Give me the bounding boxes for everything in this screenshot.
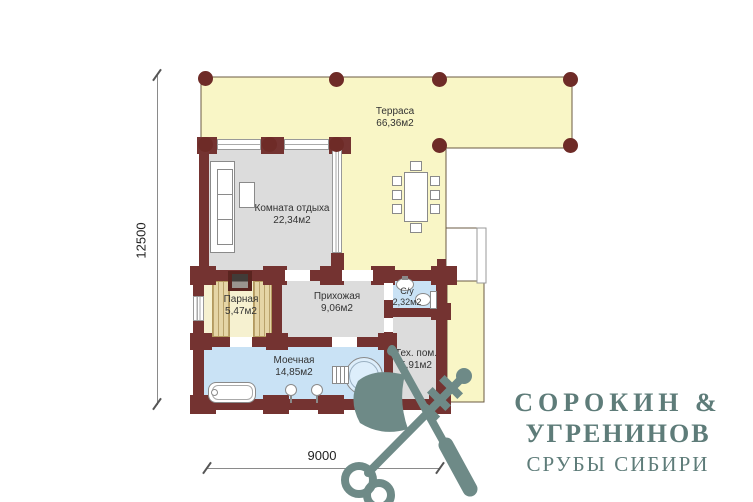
log-column <box>329 72 344 87</box>
chair <box>392 176 402 186</box>
chair <box>410 161 422 171</box>
shower-stand-pole <box>290 396 292 403</box>
window-wall-glazing <box>332 150 342 253</box>
room-area: 14,85м2 <box>275 367 312 379</box>
log-column <box>262 137 277 152</box>
room-name: Терраса <box>376 106 414 118</box>
chair <box>430 204 440 214</box>
room-label-terrace: Терраса 66,36м2 <box>345 106 445 130</box>
room-label-rest-room: Комната отдыха 22,34м2 <box>242 203 342 227</box>
shower-stand <box>285 384 297 396</box>
door-opening <box>230 337 252 347</box>
toilet-tank <box>430 291 437 309</box>
room-name: С/у <box>400 286 414 297</box>
log-column <box>329 137 344 152</box>
room-name: Моечная <box>274 355 315 367</box>
chair <box>392 190 402 200</box>
wall <box>199 140 209 271</box>
sofa-cushions <box>217 169 233 245</box>
log-column <box>198 71 213 86</box>
log-column <box>563 72 578 87</box>
shower-stand-pole <box>316 396 318 403</box>
log-end-block <box>263 395 289 414</box>
room-area: 9,06м2 <box>321 303 353 315</box>
log-end-block <box>266 333 288 350</box>
dimension-label-height: 12500 <box>134 211 149 271</box>
brand-name-line2: УГРЕНИНОВ <box>500 418 736 450</box>
bathtub-faucet <box>211 389 218 396</box>
dimension-line-vertical <box>157 75 158 405</box>
bathtub-basin <box>212 385 253 400</box>
window <box>193 296 204 321</box>
log-end-block <box>190 333 212 350</box>
floor-plan-page: Терраса 66,36м2 Комната отдыха 22,34м2 П… <box>0 0 753 502</box>
sofa-cushion-divider <box>218 194 232 195</box>
room-area: 2,32м2 <box>393 297 422 308</box>
brand-logo: СОРОКИН & УГРЕНИНОВ СРУБЫ СИБИРИ <box>500 388 736 478</box>
chair <box>430 190 440 200</box>
room-name: Прихожая <box>314 291 360 303</box>
window <box>217 139 261 150</box>
room-area: 5,47м2 <box>225 306 257 318</box>
chair <box>410 223 422 233</box>
porch-step <box>477 228 486 283</box>
shower-stand <box>311 384 323 396</box>
crossed-axe-key-icon <box>330 345 490 502</box>
room-area: 22,34м2 <box>273 215 310 227</box>
room-label-bathroom: С/у 2,32м2 <box>385 286 429 308</box>
dining-table <box>404 172 428 222</box>
door-opening <box>342 270 373 281</box>
sauna-stove-firebox <box>232 274 248 288</box>
sofa-cushion-divider <box>218 219 232 220</box>
wall <box>252 337 332 347</box>
room-name: Парная <box>224 294 259 306</box>
door-opening <box>384 318 393 332</box>
room-area: 66,36м2 <box>376 118 413 130</box>
sink-tap <box>402 276 408 280</box>
room-label-hallway: Прихожая 9,06м2 <box>287 291 387 315</box>
room-label-steam-room: Парная 5,47м2 <box>206 294 276 318</box>
log-column <box>432 72 447 87</box>
log-column <box>432 138 447 153</box>
log-column <box>198 137 213 152</box>
room-name: Комната отдыха <box>255 203 330 215</box>
window <box>284 139 329 150</box>
log-end-block <box>190 266 216 285</box>
log-end-block <box>431 266 457 285</box>
brand-name-line1: СОРОКИН & <box>500 388 736 418</box>
sauna-stove <box>228 271 252 291</box>
log-column <box>563 138 578 153</box>
chair <box>392 204 402 214</box>
chair <box>430 176 440 186</box>
room-label-washing-room: Моечная 14,85м2 <box>244 355 344 379</box>
log-end-block <box>263 266 287 285</box>
brand-tagline: СРУБЫ СИБИРИ <box>500 450 736 478</box>
door-opening <box>285 270 310 281</box>
